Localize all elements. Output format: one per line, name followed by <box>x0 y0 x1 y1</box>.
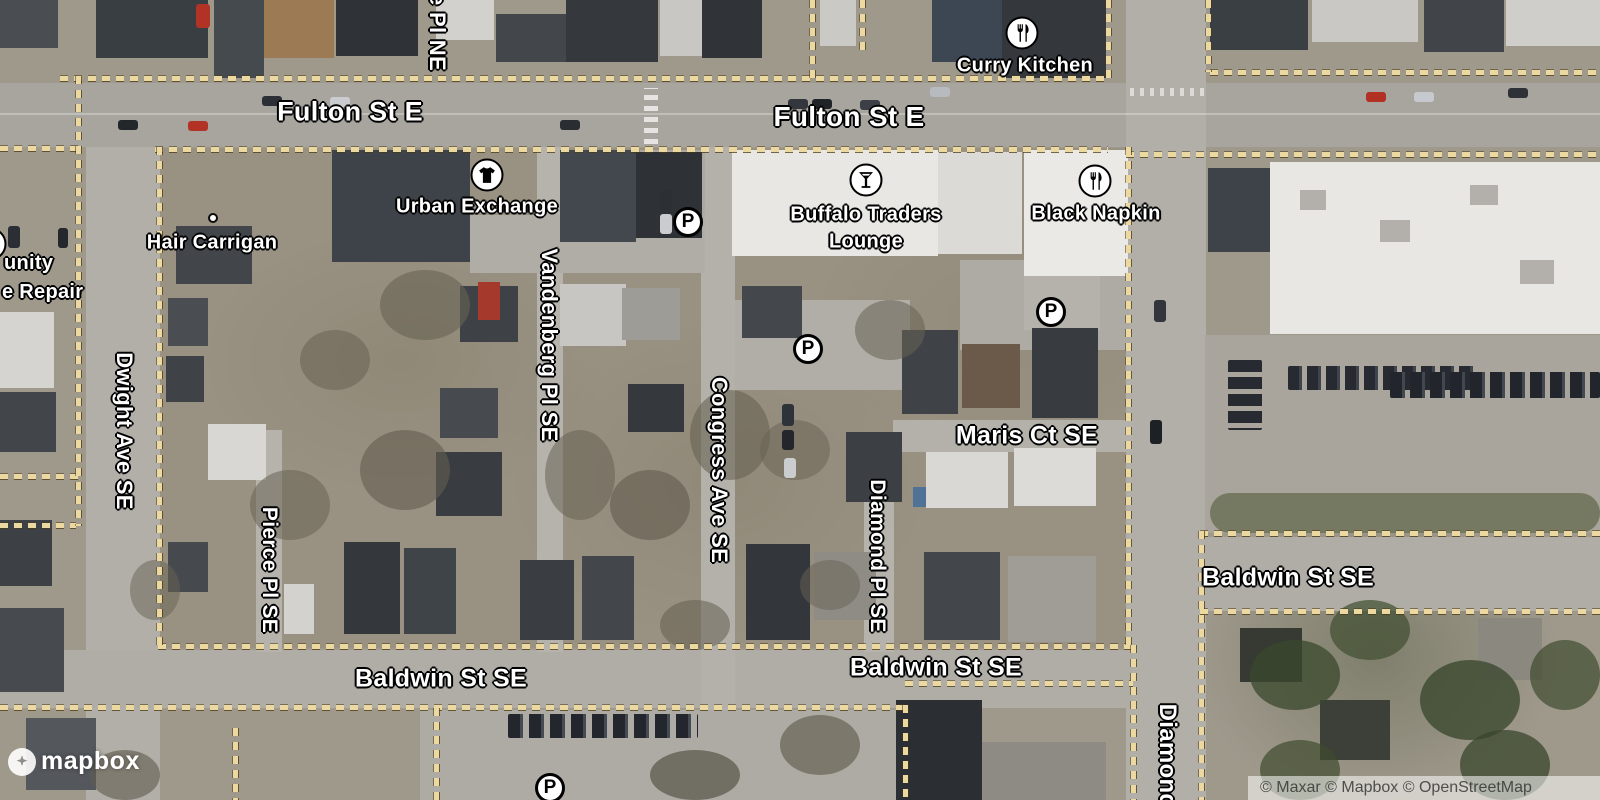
bar-icon <box>850 164 883 197</box>
boundary-dash <box>1106 0 1111 78</box>
building <box>926 452 1008 508</box>
restaurant-icon <box>1006 17 1039 50</box>
parked-car-row <box>1228 360 1262 430</box>
boundary-dash <box>1126 152 1600 157</box>
building <box>560 150 636 242</box>
tree <box>1530 640 1600 710</box>
boundary-dash <box>0 474 80 479</box>
boundary-dash <box>0 705 908 710</box>
building <box>702 0 762 58</box>
building <box>404 548 456 634</box>
building <box>560 284 626 346</box>
boundary-dash <box>0 523 76 528</box>
tree <box>360 430 450 510</box>
building <box>1506 0 1600 46</box>
car <box>118 120 138 130</box>
building <box>208 424 266 480</box>
street-label-dwight: Dwight Ave SE <box>111 352 137 510</box>
building <box>896 700 982 800</box>
building <box>660 0 702 56</box>
building <box>566 0 658 62</box>
building <box>0 312 54 388</box>
rooftop-unit <box>1300 190 1326 210</box>
car <box>784 458 796 478</box>
building <box>264 0 334 58</box>
street-label-baldwin-center: Baldwin St SE <box>850 654 1022 683</box>
tree <box>545 430 615 520</box>
attribution-text: © Maxar © Mapbox © OpenStreetMap <box>1260 779 1532 797</box>
street-label-baldwin-west: Baldwin St SE <box>355 665 527 694</box>
tree <box>650 750 740 800</box>
boundary-dash <box>1200 609 1600 614</box>
car <box>782 404 794 426</box>
boundary-dash <box>233 728 238 800</box>
tree <box>800 560 860 610</box>
crosswalk <box>644 88 658 144</box>
boundary-dash <box>810 0 815 78</box>
poi-label-urban-exchange: Urban Exchange <box>396 196 558 219</box>
parking-icon: P <box>1036 297 1066 327</box>
building <box>96 0 208 58</box>
building <box>168 298 208 346</box>
street-label-diamond-pl: Diamond Pl SE <box>865 479 889 632</box>
street-label-maris-ct: Maris Ct SE <box>956 422 1098 451</box>
boundary-dash <box>0 146 82 151</box>
building <box>628 384 684 432</box>
tree <box>130 560 180 620</box>
crosswalk <box>1130 88 1204 96</box>
building <box>924 552 1000 640</box>
map-attribution[interactable]: © Maxar © Mapbox © OpenStreetMap <box>1248 776 1600 800</box>
building <box>496 14 566 62</box>
poi-label-buffalo-traders-1: Buffalo Traders <box>790 204 941 227</box>
building <box>1210 0 1308 50</box>
car <box>8 226 20 248</box>
poi-label-curry-kitchen: Curry Kitchen <box>957 55 1093 78</box>
rooftop-unit <box>1470 185 1498 205</box>
building <box>344 542 400 634</box>
building-large-white <box>1270 162 1600 334</box>
car <box>1366 92 1386 102</box>
tree <box>1250 640 1340 710</box>
street-label-diamond-partial: Diamond <box>1153 704 1181 800</box>
tree <box>610 470 690 540</box>
building <box>742 286 802 338</box>
mapbox-logo-icon <box>8 748 36 776</box>
rooftop-unit <box>1520 260 1554 284</box>
building <box>932 0 1002 62</box>
car <box>1150 420 1162 444</box>
building <box>1424 0 1504 52</box>
boundary-dash <box>1210 70 1600 75</box>
poi-label-black-napkin: Black Napkin <box>1031 203 1160 226</box>
car <box>1154 300 1166 322</box>
car <box>560 120 580 130</box>
building <box>1032 328 1098 418</box>
building <box>1208 168 1272 252</box>
tree <box>300 330 370 390</box>
street-label-baldwin-east: Baldwin St SE <box>1202 564 1374 593</box>
boundary-dash <box>157 147 162 647</box>
building <box>962 344 1020 408</box>
building <box>0 0 58 48</box>
building <box>1008 556 1096 642</box>
street-label-congress: Congress Ave SE <box>706 377 732 563</box>
building <box>622 288 680 340</box>
boundary-dash <box>860 0 865 55</box>
rooftop-unit <box>1380 220 1410 242</box>
building <box>520 560 574 640</box>
satellite-map-canvas[interactable]: Fulton St E Fulton St E Maris Ct SE Bald… <box>0 0 1600 800</box>
parking-icon: P <box>673 207 703 237</box>
boundary-dash <box>155 147 1108 152</box>
boundary-dash <box>1200 531 1600 536</box>
poi-label-partial-2: e Repair <box>2 281 83 304</box>
car <box>196 4 210 28</box>
boundary-dash <box>903 705 908 800</box>
red-container <box>478 282 500 320</box>
poi-label-buffalo-traders-2: Lounge <box>829 231 903 254</box>
poi-dot-icon <box>208 213 218 223</box>
boundary-dash <box>434 708 439 800</box>
car <box>660 190 672 210</box>
restaurant-icon <box>1079 165 1112 198</box>
parking-icon: P <box>535 773 565 800</box>
street-label-pl-ne-partial: e Pl NE <box>424 0 450 71</box>
car <box>58 228 68 248</box>
tree <box>1420 660 1520 740</box>
parked-car-row <box>1390 372 1600 398</box>
boundary-dash <box>158 644 1133 649</box>
clothing-store-icon <box>471 159 504 192</box>
street-label-fulton-east: Fulton St E <box>773 101 924 133</box>
building <box>0 520 52 586</box>
parked-car-row <box>508 714 698 738</box>
boundary-dash <box>60 76 1108 81</box>
car <box>660 214 672 234</box>
mapbox-logo[interactable]: mapbox <box>8 747 140 776</box>
building <box>0 392 56 452</box>
car <box>1414 92 1434 102</box>
tree <box>380 270 470 340</box>
car <box>782 430 794 450</box>
boundary-dash <box>1206 0 1211 72</box>
mapbox-wordmark: mapbox <box>41 747 140 776</box>
tree-row <box>1210 493 1600 533</box>
building <box>1312 0 1418 42</box>
building <box>1014 448 1096 506</box>
car <box>930 87 950 97</box>
poi-label-hair-carrigan: Hair Carrigan <box>147 232 278 255</box>
poi-label-partial-1: unity <box>4 252 53 275</box>
building <box>440 388 498 438</box>
car <box>1508 88 1528 98</box>
building <box>336 0 418 56</box>
building <box>166 356 204 402</box>
building <box>982 742 1106 800</box>
street-label-fulton-west: Fulton St E <box>277 97 423 128</box>
tree <box>660 600 730 650</box>
building <box>820 0 856 46</box>
boundary-dash <box>1131 645 1136 800</box>
tree <box>780 715 860 775</box>
tree <box>855 300 925 360</box>
car <box>188 121 208 131</box>
parking-icon: P <box>793 334 823 364</box>
building <box>582 556 634 640</box>
building <box>214 0 264 78</box>
building <box>0 608 64 692</box>
street-label-vandenberg: Vandenberg Pl SE <box>536 248 562 441</box>
street-label-pierce: Pierce Pl SE <box>257 507 281 633</box>
building <box>938 152 1022 254</box>
building <box>284 584 314 634</box>
road-diamond-ave <box>1126 0 1206 800</box>
